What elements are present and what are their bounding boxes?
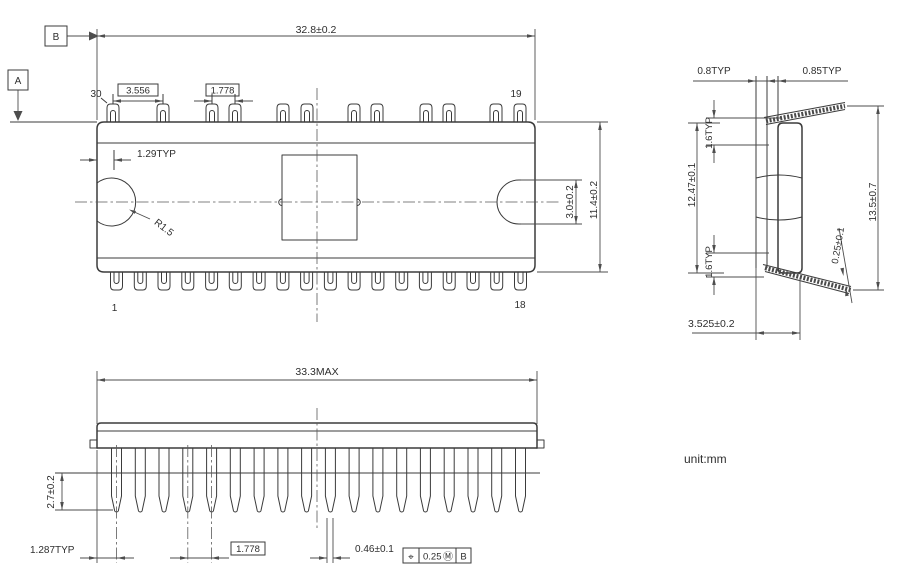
front-lead	[254, 448, 264, 512]
center-pad-outline	[282, 155, 357, 240]
pin-detail	[233, 272, 238, 284]
pin-30-label: 30	[90, 89, 102, 100]
dimension-arrow	[114, 158, 122, 162]
front-lead	[492, 448, 502, 512]
front-lead	[397, 448, 407, 512]
dimension-arrow	[527, 34, 535, 38]
dimension-arrow	[840, 268, 844, 276]
dimension-arrow	[60, 473, 64, 481]
front-lead	[468, 448, 478, 512]
pin-1-label: 1	[112, 303, 118, 314]
dim-slot-width-label: 3.0±0.2	[565, 185, 576, 219]
pin	[372, 272, 384, 290]
pin-detail	[280, 272, 285, 284]
dimension-arrow	[598, 122, 602, 130]
dimension-arrow	[756, 331, 764, 335]
pin	[348, 272, 360, 290]
pin-detail	[352, 272, 357, 284]
pin	[348, 104, 360, 122]
pin	[182, 272, 194, 290]
pin	[111, 272, 123, 290]
pin	[206, 272, 218, 290]
dim-edge-offset-label: 1.29TYP	[137, 149, 176, 160]
dimension-arrow	[60, 502, 64, 510]
package-body-side-view	[778, 123, 802, 273]
pin-detail	[161, 111, 166, 123]
dim-edge-to-first-pin-label: 1.287TYP	[30, 545, 75, 556]
dimension-arrow	[876, 282, 880, 290]
pin-detail	[375, 111, 380, 123]
pin	[490, 104, 502, 122]
pin	[277, 272, 289, 290]
pin-detail	[423, 272, 428, 284]
pin-detail	[447, 111, 452, 123]
dimension-arrow	[235, 99, 243, 103]
dim-lead-pitch-label: 1.778	[236, 544, 260, 555]
pin	[371, 104, 383, 122]
drawing-line	[763, 265, 851, 287]
dimension-arrow	[319, 556, 327, 560]
pin-detail	[328, 272, 333, 284]
pin-detail	[281, 111, 286, 123]
pin-detail	[471, 272, 476, 284]
position-tolerance-icon: ⌖	[408, 552, 414, 563]
front-lead	[135, 448, 145, 512]
dimension-arrow	[792, 331, 800, 335]
pin-detail	[352, 111, 357, 123]
dim-notch-radius-label: R1.5	[152, 217, 176, 239]
dimension-arrow	[529, 378, 537, 382]
front-lead	[373, 448, 383, 512]
pin	[301, 272, 313, 290]
dimension-arrow	[117, 556, 125, 560]
pin	[107, 104, 119, 122]
unit-note: unit:mm	[684, 452, 727, 466]
pin-detail	[185, 272, 190, 284]
dimension-arrow	[155, 99, 163, 103]
dimension-arrow	[204, 99, 212, 103]
dim-front-overall-width-label: 33.3MAX	[295, 366, 338, 378]
pin-detail	[111, 111, 116, 123]
pin	[443, 104, 455, 122]
pin	[467, 272, 479, 290]
pin	[253, 272, 265, 290]
dimension-arrow	[748, 79, 756, 83]
dimension-arrow	[695, 123, 699, 131]
dim-lead-row-offset-label: 0.8TYP	[697, 66, 731, 77]
pin-detail	[447, 272, 452, 284]
dimension-arrow	[876, 106, 880, 114]
pin	[134, 272, 146, 290]
front-lead	[302, 448, 312, 512]
tolerance-value-label: 0.25	[423, 552, 442, 563]
dimension-arrow	[333, 556, 341, 560]
dim-body-thickness-label: 3.525±0.2	[688, 318, 735, 330]
package-body-top-view	[97, 122, 535, 272]
dim-lead-tip-length-label: 2.7±0.2	[46, 475, 57, 509]
pin	[277, 104, 289, 122]
left-tab	[90, 440, 97, 448]
front-lead	[325, 448, 335, 512]
front-lead	[159, 448, 169, 512]
drawing-linework	[10, 29, 884, 563]
pin-detail	[518, 272, 523, 284]
pin-detail	[399, 272, 404, 284]
front-lead	[230, 448, 240, 512]
drawing-line	[764, 103, 845, 118]
dimension-arrow	[778, 79, 786, 83]
pin-detail	[494, 111, 499, 123]
pin-detail	[305, 111, 310, 123]
dimension-arrow	[97, 34, 105, 38]
pin	[229, 272, 241, 290]
dimension-arrow	[598, 264, 602, 272]
mold-line	[756, 175, 802, 178]
dim-shoulder-top-label: 1.6TYP	[704, 117, 715, 149]
dim-body-depth-label: 11.4±0.2	[589, 181, 600, 220]
pin	[491, 272, 503, 290]
pin-detail	[210, 111, 215, 123]
pin	[419, 272, 431, 290]
pin	[301, 104, 313, 122]
pin-detail	[494, 272, 499, 284]
right-tab	[537, 440, 544, 448]
pin	[420, 104, 432, 122]
dimension-arrow	[211, 556, 219, 560]
pin-detail	[375, 272, 380, 284]
pin-detail	[114, 272, 119, 284]
pin-detail	[424, 111, 429, 123]
pin	[515, 272, 527, 290]
datum-a-label: A	[15, 76, 22, 87]
dim-lead-width-label: 0.46±0.1	[355, 544, 394, 555]
dimension-arrow	[89, 556, 97, 560]
front-lead	[516, 448, 526, 512]
tolerance-frame: ⌖ 0.25 Ⓜ B	[403, 548, 471, 563]
pin-detail	[138, 272, 143, 284]
pin	[514, 104, 526, 122]
dim-body-length-label: 12.47±0.1	[687, 162, 698, 207]
dim-pin-pitch-label: 1.778	[211, 86, 235, 97]
pin-detail	[162, 272, 167, 284]
pin-19-label: 19	[510, 89, 522, 100]
drawing-line	[101, 98, 107, 103]
pin-detail	[304, 272, 309, 284]
pin	[157, 104, 169, 122]
dimension-arrow	[97, 378, 105, 382]
dimension-arrow	[767, 79, 775, 83]
pin	[396, 272, 408, 290]
mmc-modifier-icon: Ⓜ	[443, 551, 453, 563]
pin	[443, 272, 455, 290]
package-outline-drawing-page: B A 32.8±0.2 3.556 1.778 30 19 1 18 1.29…	[0, 0, 899, 577]
datum-b-label: B	[53, 32, 60, 43]
dimension-arrow	[180, 556, 188, 560]
dimension-arrow	[89, 158, 97, 162]
pin-detail	[257, 272, 262, 284]
dim-pin-group-pitch-label: 3.556	[126, 86, 150, 97]
bottom-bent-lead	[765, 268, 851, 290]
pin	[229, 104, 241, 122]
tolerance-datum-label: B	[460, 552, 466, 563]
mold-line	[756, 217, 802, 220]
dim-overall-width-top-label: 32.8±0.2	[296, 24, 337, 36]
dim-lead-row-offset2-label: 0.85TYP	[803, 66, 842, 77]
pin	[158, 272, 170, 290]
front-lead	[420, 448, 430, 512]
datum-a-triangle	[14, 111, 23, 121]
pin-detail	[209, 272, 214, 284]
front-lead	[349, 448, 359, 512]
dimension-arrow	[712, 110, 716, 118]
pin-detail	[233, 111, 238, 123]
front-lead	[278, 448, 288, 512]
package-outline-drawing: B A 32.8±0.2 3.556 1.778 30 19 1 18 1.29…	[0, 0, 899, 577]
dimension-arrow	[113, 99, 121, 103]
front-lead	[444, 448, 454, 512]
dimension-arrow	[695, 265, 699, 273]
pin-18-label: 18	[514, 300, 526, 311]
pin-detail	[518, 111, 523, 123]
dim-overall-height-label: 13.5±0.7	[868, 182, 879, 221]
pin	[206, 104, 218, 122]
dim-shoulder-bottom-label: 1.6TYP	[704, 246, 715, 278]
front-view-labels: 33.3MAX 2.7±0.2 1.287TYP 1.778 0.46±0.1 …	[30, 366, 471, 563]
pin	[324, 272, 336, 290]
